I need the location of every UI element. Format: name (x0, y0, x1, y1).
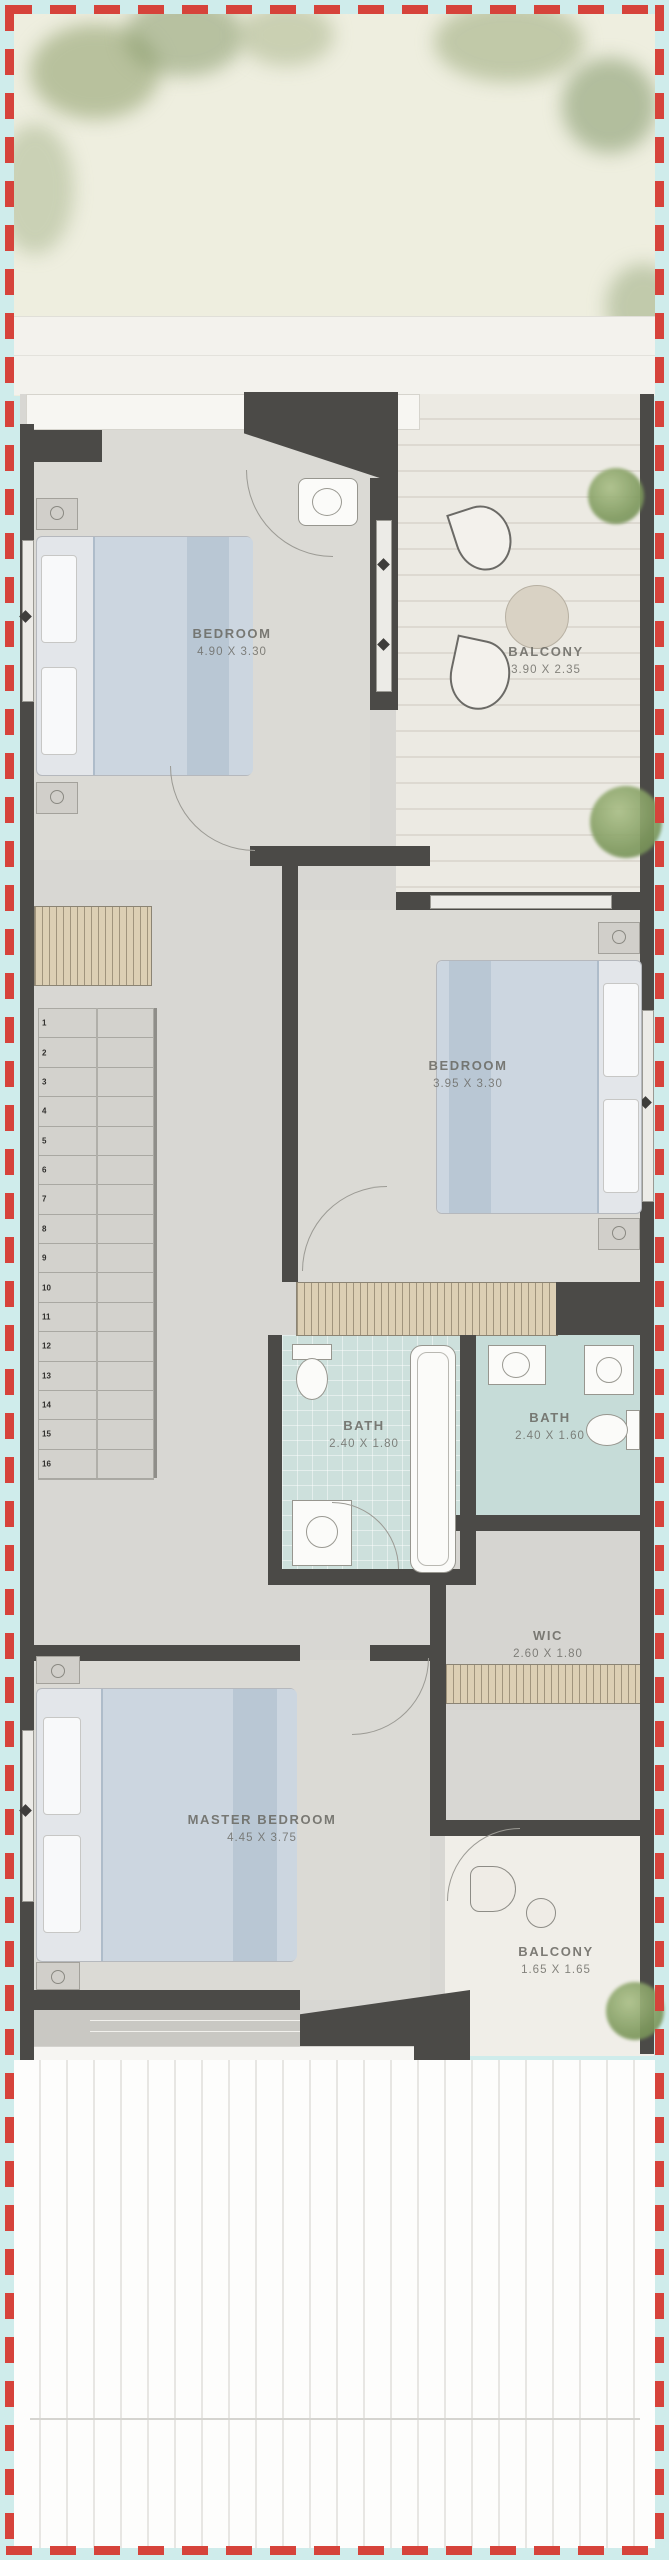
room-dims: 4.45 X 3.75 (188, 1832, 337, 1844)
room-dims: 2.40 X 1.60 (515, 1430, 585, 1442)
label-master-bedroom: MASTER BEDROOM 4.45 X 3.75 (188, 1812, 337, 1844)
wall (20, 430, 102, 462)
room-dims: 1.65 X 1.65 (518, 1964, 593, 1976)
room-name: BEDROOM (428, 1058, 507, 1073)
wall (430, 1820, 654, 1836)
bedroom2-window (430, 895, 612, 909)
nightstand (598, 922, 640, 954)
room-name: BEDROOM (192, 626, 271, 641)
stair-step-number: 8 (42, 1224, 46, 1233)
label-balcony-2: BALCONY 1.65 X 1.65 (518, 1944, 593, 1976)
label-balcony-1: BALCONY 3.90 X 2.35 (508, 644, 583, 676)
side-table (526, 1898, 556, 1928)
wall (460, 1335, 476, 1585)
stair-step-number: 12 (42, 1342, 51, 1351)
room-name: BATH (515, 1410, 585, 1425)
room-name: WIC (513, 1628, 583, 1643)
site-boundary-bottom (6, 2546, 663, 2555)
nightstand (598, 1218, 640, 1250)
room-name: BALCONY (518, 1944, 593, 1959)
wall (282, 866, 298, 1282)
stair-step-number: 2 (42, 1048, 46, 1057)
toilet (586, 1414, 628, 1446)
label-bath-2: BATH 2.40 X 1.60 (515, 1410, 585, 1442)
step-line (90, 2031, 300, 2032)
tree-icon (590, 786, 662, 858)
step-line (90, 2020, 300, 2021)
label-bath-1: BATH 2.40 X 1.80 (329, 1418, 399, 1450)
label-bedroom-1: BEDROOM 4.90 X 3.30 (192, 626, 271, 658)
nightstand (36, 498, 78, 530)
stair-step-number: 10 (42, 1283, 51, 1292)
nightstand (36, 1962, 80, 1990)
room-dims: 2.60 X 1.80 (513, 1648, 583, 1660)
tree-icon (588, 468, 644, 524)
bathtub-inner (417, 1352, 449, 1566)
stair-step-number: 13 (42, 1371, 51, 1380)
stair-step-number: 6 (42, 1166, 46, 1175)
floor-plan: 12345678910111213141516 BEDROOM 4.90 X 3… (0, 0, 669, 2560)
site-boundary-left (5, 5, 14, 2555)
sink-icon (502, 1352, 530, 1378)
tree-icon (14, 124, 74, 254)
terrace-deck (14, 2060, 655, 2548)
wic-wardrobe (445, 1664, 642, 1704)
stair-step-number: 16 (42, 1459, 51, 1468)
site-boundary-right (655, 5, 664, 2555)
label-bedroom-2: BEDROOM 3.95 X 3.30 (428, 1058, 507, 1090)
wall (556, 1282, 654, 1335)
room-name: BALCONY (508, 644, 583, 659)
stair-step-number: 9 (42, 1254, 46, 1263)
stair-step-number: 11 (42, 1312, 50, 1321)
wall (20, 1990, 300, 2010)
toilet (296, 1358, 328, 1400)
balcony-door-window (376, 520, 392, 692)
pouf-table (505, 585, 569, 649)
stair-step-number: 5 (42, 1136, 46, 1145)
wall (268, 1335, 282, 1585)
tree-icon (239, 14, 334, 66)
tree-icon (434, 14, 584, 82)
room-dims: 2.40 X 1.80 (329, 1438, 399, 1450)
room-dims: 4.90 X 3.30 (192, 646, 271, 658)
stair-step-number: 14 (42, 1401, 51, 1410)
room-name: MASTER BEDROOM (188, 1812, 337, 1827)
nightstand (36, 782, 78, 814)
closet-bedroom-1 (34, 906, 152, 986)
toilet-tank (626, 1410, 640, 1450)
stair-step-number: 1 (42, 1019, 46, 1028)
walkway (14, 316, 655, 395)
stair-divider (96, 1008, 98, 1478)
label-wic: WIC 2.60 X 1.80 (513, 1628, 583, 1660)
wall (640, 394, 654, 2054)
wall (250, 846, 430, 866)
stair-step-number: 3 (42, 1077, 46, 1086)
stair-step-number: 4 (42, 1107, 46, 1116)
nightstand (36, 1656, 80, 1684)
shower-drain-icon (596, 1357, 622, 1383)
tree-icon (562, 58, 655, 153)
stair-step-number: 7 (42, 1195, 46, 1204)
deck-joint-line (30, 2418, 640, 2420)
stair-step-number: 15 (42, 1430, 51, 1439)
wall (440, 1515, 654, 1531)
site-boundary-top (6, 5, 663, 14)
entry-porch (34, 2010, 300, 2046)
hall-closet (296, 1282, 558, 1336)
room-dims: 3.95 X 3.30 (428, 1078, 507, 1090)
room-name: BATH (329, 1418, 399, 1433)
room-dims: 3.90 X 2.35 (508, 664, 583, 676)
stair-handrail (154, 1008, 157, 1478)
